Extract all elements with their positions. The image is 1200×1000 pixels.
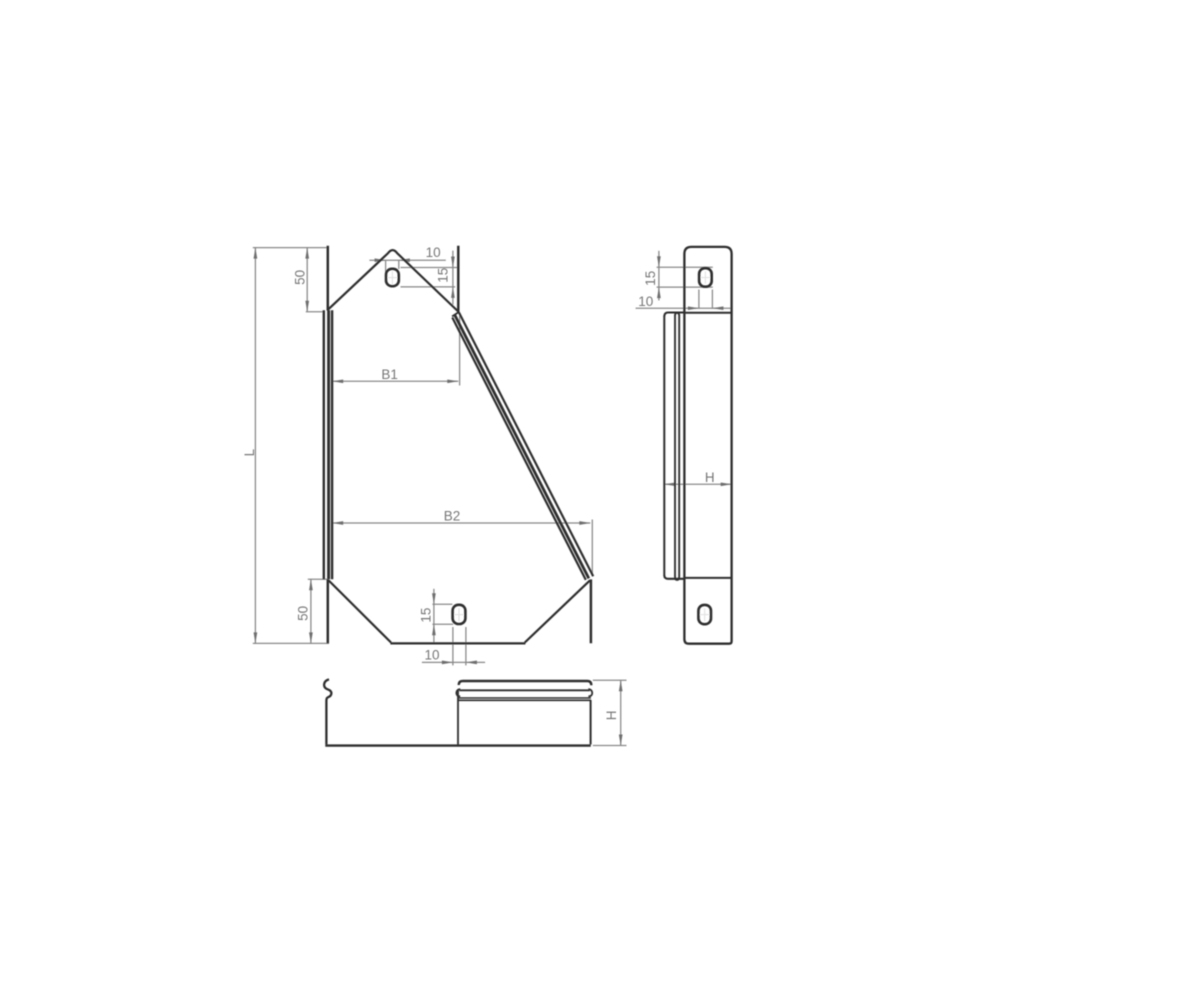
svg-text:50: 50 <box>292 270 307 285</box>
svg-text:50: 50 <box>296 606 311 621</box>
svg-text:L: L <box>242 448 257 456</box>
svg-text:15: 15 <box>643 271 658 286</box>
svg-text:15: 15 <box>419 608 434 623</box>
svg-text:15: 15 <box>435 268 450 283</box>
svg-text:H: H <box>604 711 619 721</box>
svg-text:10: 10 <box>424 648 439 663</box>
svg-text:B1: B1 <box>381 367 398 382</box>
svg-text:B2: B2 <box>444 509 461 524</box>
svg-text:H: H <box>705 470 715 485</box>
svg-text:10: 10 <box>638 294 653 309</box>
svg-text:10: 10 <box>426 245 441 260</box>
